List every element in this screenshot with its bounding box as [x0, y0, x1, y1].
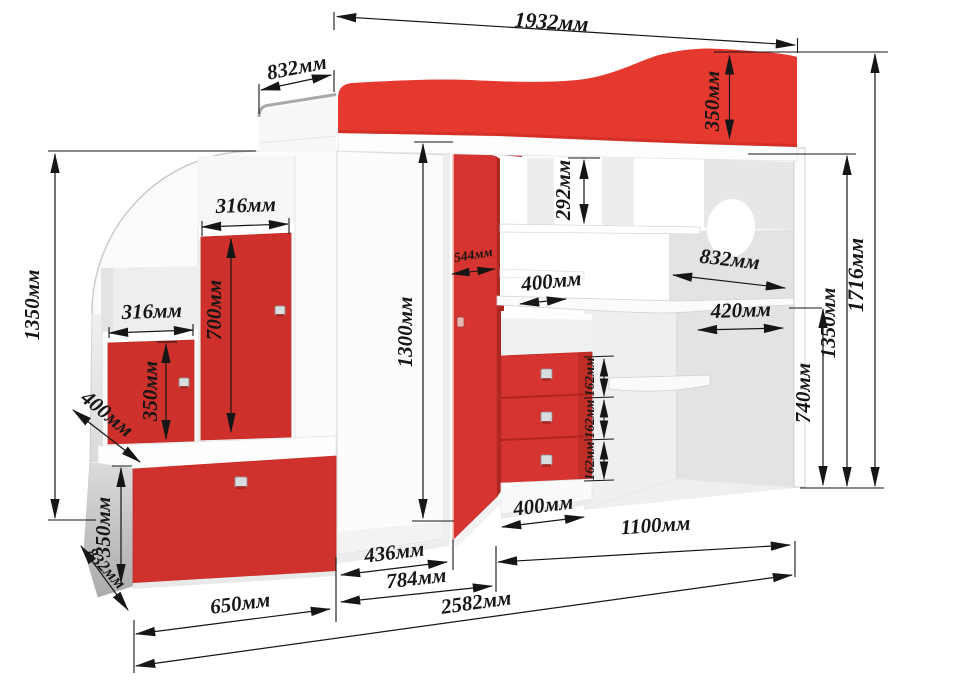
- svg-text:162мм: 162мм: [582, 442, 597, 481]
- svg-text:1300мм: 1300мм: [393, 297, 417, 368]
- svg-text:420мм: 420мм: [709, 297, 771, 323]
- svg-text:1350мм: 1350мм: [20, 270, 44, 341]
- svg-text:316мм: 316мм: [120, 298, 182, 324]
- svg-text:1716мм: 1716мм: [843, 238, 868, 312]
- svg-text:316мм: 316мм: [214, 192, 276, 218]
- svg-text:162мм: 162мм: [582, 400, 597, 439]
- svg-text:162мм: 162мм: [582, 358, 597, 397]
- svg-text:1932мм: 1932мм: [514, 7, 590, 36]
- svg-text:740мм: 740мм: [791, 363, 815, 423]
- svg-text:350мм: 350мм: [138, 361, 162, 422]
- svg-text:1100мм: 1100мм: [620, 511, 691, 540]
- svg-text:1350мм: 1350мм: [816, 288, 840, 359]
- svg-text:700мм: 700мм: [202, 280, 226, 340]
- svg-text:350мм: 350мм: [700, 71, 724, 132]
- svg-text:292мм: 292мм: [551, 160, 575, 221]
